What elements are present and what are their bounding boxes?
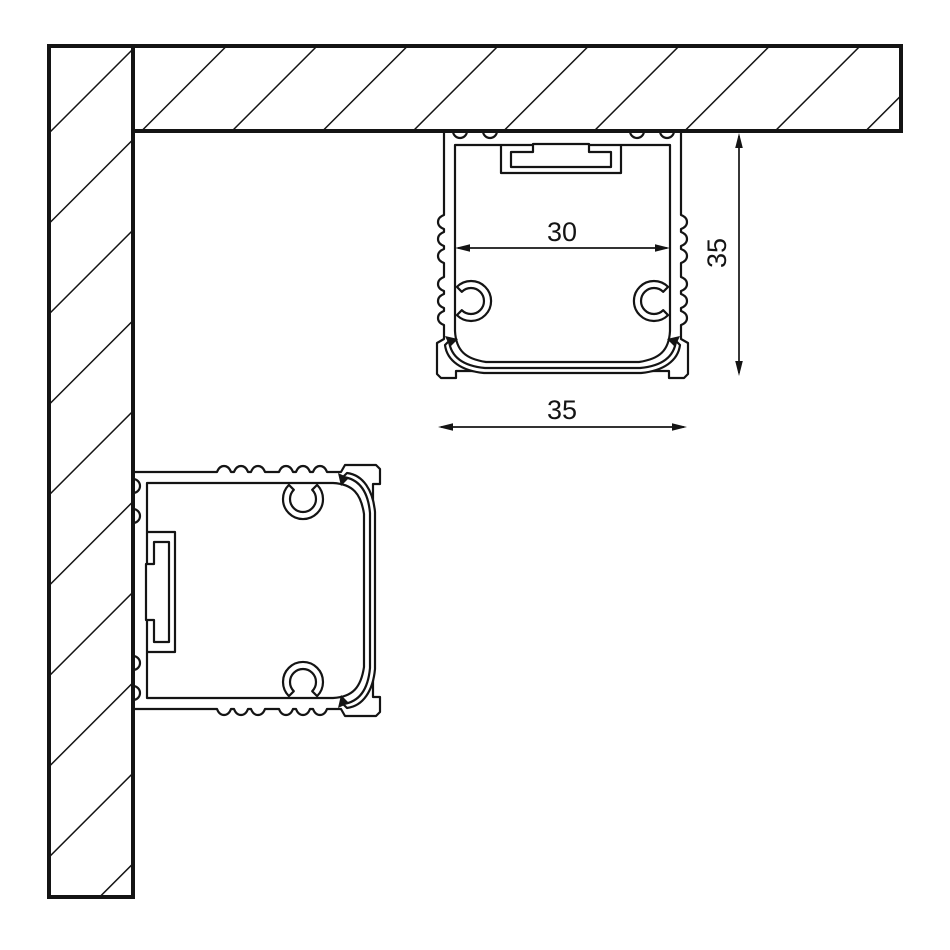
technical-drawing-canvas: 30 35 35	[0, 0, 950, 950]
arrowhead-right-icon	[672, 423, 687, 431]
profile-height-label: 35	[702, 238, 732, 268]
arrowhead-down-icon	[735, 361, 743, 376]
arrowhead-left-icon	[438, 423, 453, 431]
dimension-profile-height: 35	[702, 133, 743, 376]
dimension-profile-width: 35	[438, 395, 687, 431]
hatched-wall-section	[49, 46, 133, 897]
profile-width-label: 35	[547, 395, 577, 425]
profile-mounting-diagram: 30 35 35	[0, 0, 950, 950]
inner-width-label: 30	[547, 217, 577, 247]
arrowhead-up-icon	[735, 133, 743, 148]
wall-mounted-profile	[133, 465, 380, 716]
ceiling-mounted-profile	[437, 131, 688, 378]
hatched-ceiling-section	[132, 46, 901, 131]
